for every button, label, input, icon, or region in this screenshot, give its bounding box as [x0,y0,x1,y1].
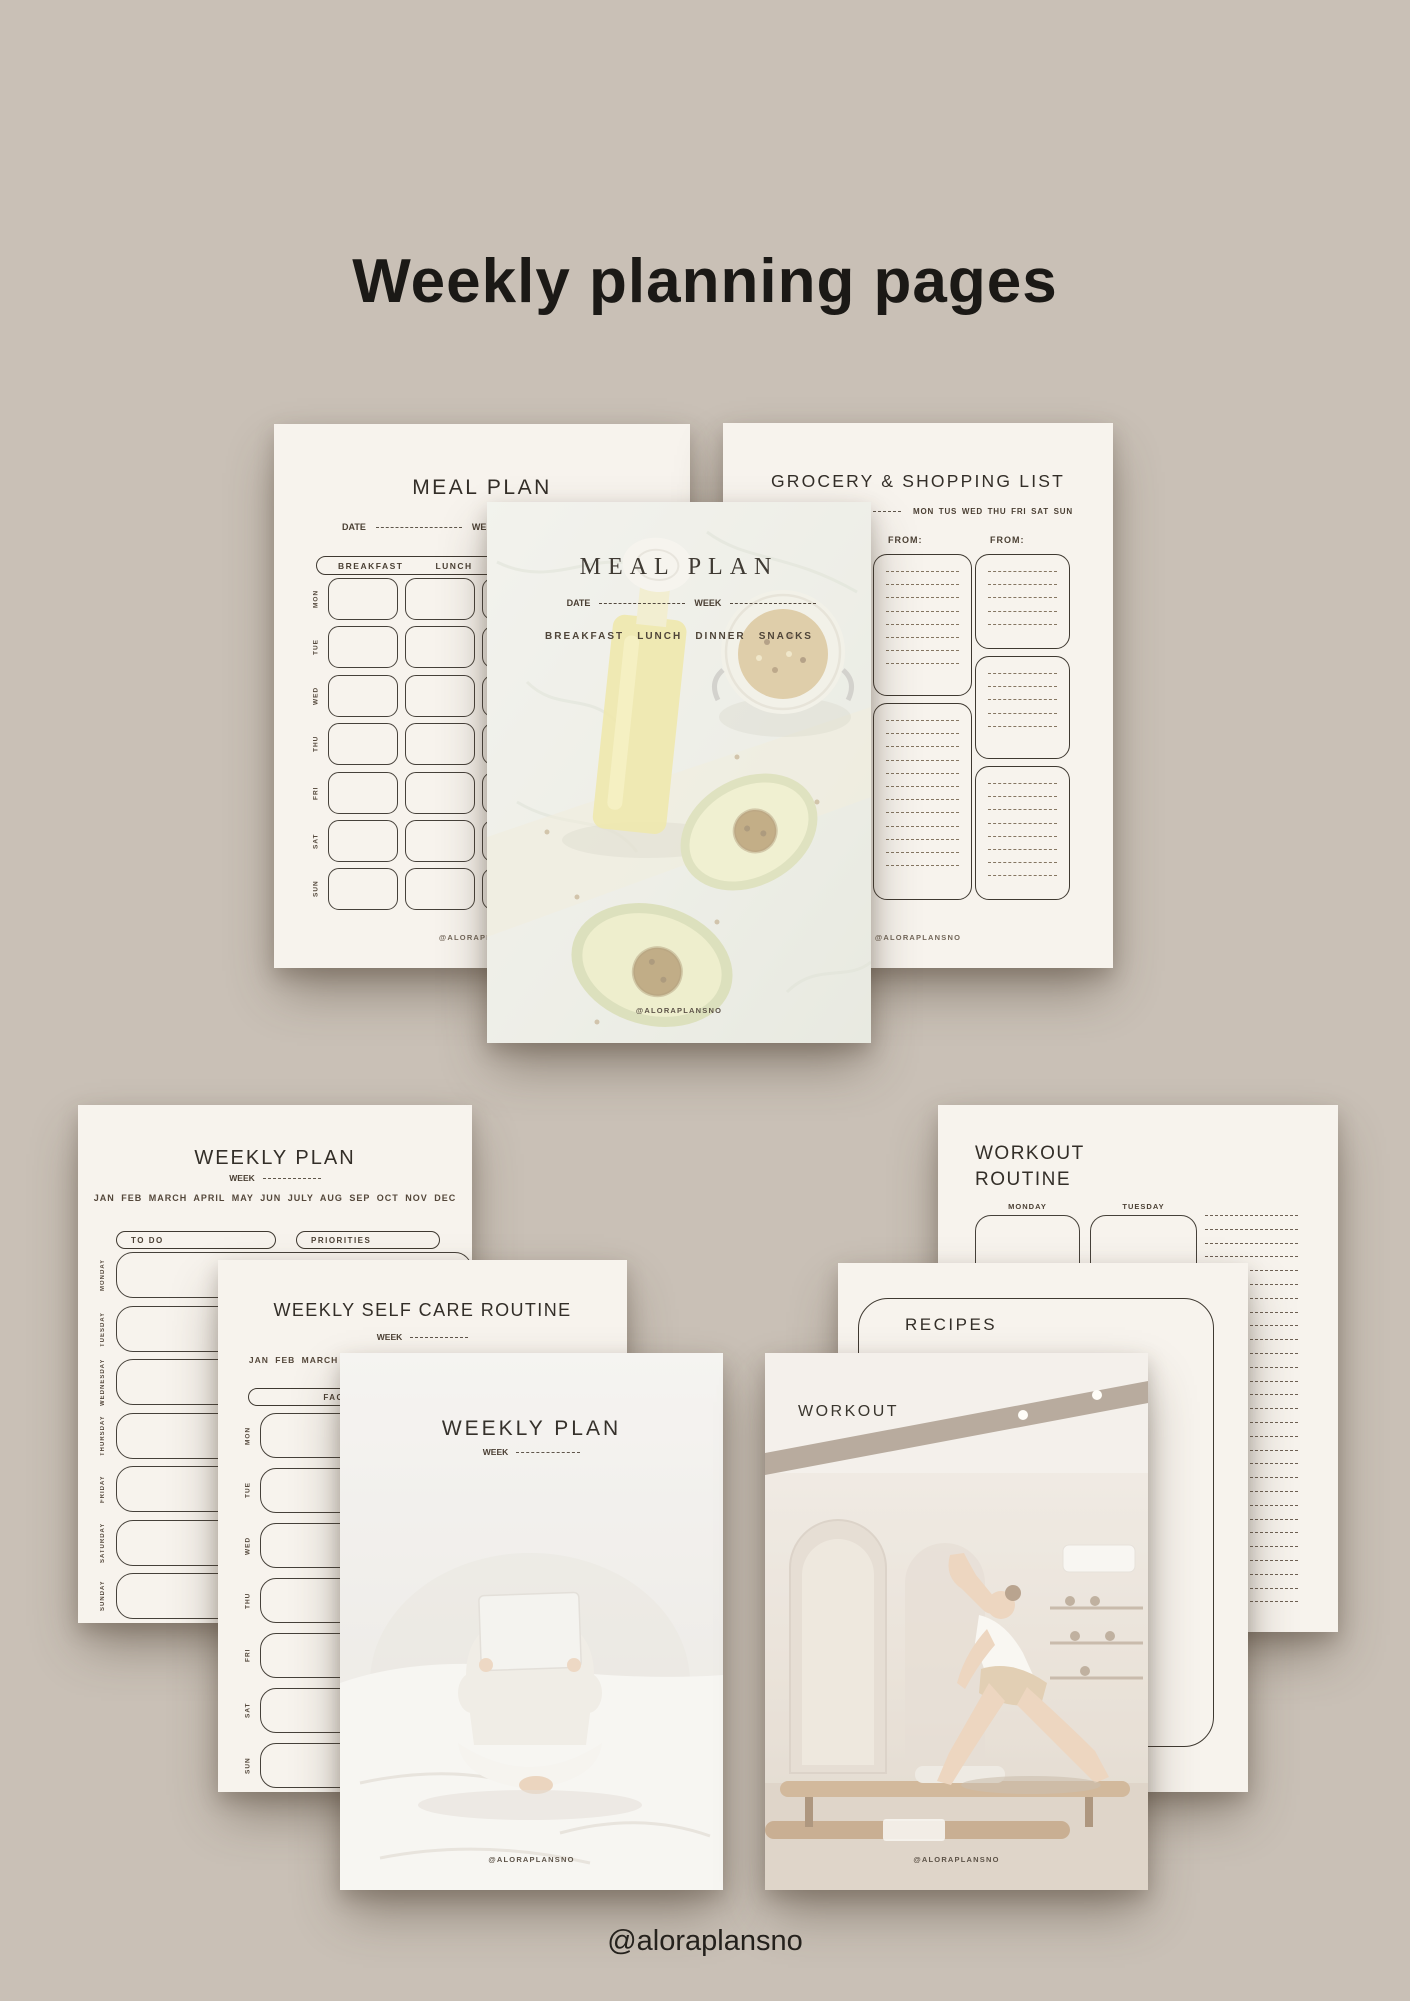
workout-cover-page: WORKOUT @ALORAPLANSNO [765,1353,1148,1890]
meal-cell [328,772,398,814]
dashed-line [886,584,959,585]
dashed-rule [730,603,816,604]
recipes-title: RECIPES [905,1315,997,1335]
week-label: WEEK [377,1332,403,1342]
week-label: WEEK [229,1173,255,1183]
dashed-line [886,637,959,638]
grocery-box [873,554,972,696]
dashed-line [988,699,1057,700]
meal-cell [405,723,475,765]
day-label: FRI [304,772,328,814]
meal-cell [328,675,398,717]
dashed-rule [263,1178,321,1179]
todo-label: TO DO [131,1236,164,1245]
dashed-line [886,720,959,721]
dashed-line [988,726,1057,727]
workout-cover-photo [765,1353,1148,1890]
dashed-line [886,812,959,813]
dashed-line [988,686,1057,687]
dashed-line [886,624,959,625]
priorities-label: PRIORITIES [311,1236,371,1245]
footer-handle: @aloraplansno [0,1925,1410,1958]
dashed-line [988,823,1057,824]
dashed-line [988,713,1057,714]
day-label: FRIDAY [90,1466,116,1512]
dashed-line [886,852,959,853]
grocery-days: MONTUSWEDTHUFRISATSUN [913,507,1073,516]
priorities-pill: PRIORITIES [296,1231,440,1249]
meal-plan-cover-page: MEAL PLAN DATE WEEK BREAKFASTLUNCHDINNER… [487,502,871,1043]
todo-pill: TO DO [116,1231,276,1249]
dashed-line [886,799,959,800]
meal-label: LUNCH [637,631,682,642]
day-label: THURSDAY [90,1413,116,1459]
weekly-form-title: WEEKLY PLAN [78,1147,472,1170]
dashed-line [988,611,1057,612]
day-label: SATURDAY [90,1520,116,1566]
grocery-day-label: TUS [939,507,957,516]
meal-label: BREAKFAST [545,631,624,642]
meal-cell [328,723,398,765]
meal-cover-title: MEAL PLAN [487,554,871,581]
date-label: DATE [342,522,366,532]
weekly-cover-title: WEEKLY PLAN [340,1417,723,1441]
meal-cell [405,820,475,862]
dashed-line [886,746,959,747]
day-label: MONDAY [90,1252,116,1298]
dashed-rule [376,527,462,528]
dashed-line [886,786,959,787]
from-label: FROM: [873,535,972,547]
week-row: WEEK [78,1173,472,1183]
dashed-line [886,865,959,866]
dashed-line [886,826,959,827]
dashed-rule [599,603,685,604]
dashed-line [988,836,1057,837]
lunch-column-label: LUNCH [435,561,472,571]
workout-routine-title-line1: WORKOUT [975,1141,1085,1167]
day-label: THU [304,723,328,765]
day-label: TUE [236,1468,260,1513]
dashed-line [988,849,1057,850]
dashed-line [886,760,959,761]
day-label: WEDNESDAY [90,1359,116,1405]
meal-cell [405,675,475,717]
workout-routine-title: WORKOUT ROUTINE [975,1141,1085,1192]
dashed-line [988,571,1057,572]
dashed-line [988,584,1057,585]
week-row: WEEK [340,1447,723,1457]
grocery-box [975,766,1070,900]
day-label: SAT [304,820,328,862]
meal-cell [328,578,398,620]
meal-cell [405,626,475,668]
dashed-line [988,862,1057,863]
dashed-line [886,611,959,612]
grocery-box [975,656,1070,759]
pill-row: TO DO PRIORITIES [116,1231,440,1249]
meal-label: DINNER [695,631,745,642]
week-label: WEEK [483,1447,509,1457]
grocery-column-left: FROM: [873,535,972,900]
breakfast-column-label: BREAKFAST [338,561,403,571]
page-title: Weekly planning pages [0,246,1410,317]
dashed-line [988,796,1057,797]
meal-cell [405,772,475,814]
meal-form-title: MEAL PLAN [274,476,690,500]
dashed-line [988,624,1057,625]
grocery-day-label: MON [913,507,934,516]
weekly-plan-cover-page: WEEKLY PLAN WEEK @ALORAPLANSNO [340,1353,723,1890]
meal-cell [405,868,475,910]
dashed-line [988,597,1057,598]
dashed-rule [516,1452,580,1453]
dashed-line [1205,1243,1298,1244]
watermark: @ALORAPLANSNO [487,1006,871,1015]
day-label: THU [236,1578,260,1623]
meal-cover-meals: BREAKFASTLUNCHDINNERSNACKS [545,631,813,642]
workout-routine-title-line2: ROUTINE [975,1167,1085,1193]
day-label: SAT [236,1688,260,1733]
grocery-title: GROCERY & SHOPPING LIST [723,471,1113,492]
meal-cell [405,578,475,620]
dashed-line [886,571,959,572]
day-label: TUESDAY [90,1306,116,1352]
monday-label: MONDAY [975,1202,1080,1211]
grocery-day-label: SUN [1054,507,1073,516]
date-label: DATE [567,598,591,608]
dashed-line [886,839,959,840]
grocery-box [873,703,972,900]
day-label: MON [236,1413,260,1458]
grocery-day-label: THU [988,507,1007,516]
grocery-box [975,554,1070,649]
watermark: @ALORAPLANSNO [765,1855,1148,1864]
day-label: SUN [236,1743,260,1788]
meal-label: SNACKS [759,631,813,642]
dashed-line [988,875,1057,876]
dashed-line [886,773,959,774]
grocery-day-label: WED [962,507,983,516]
day-label: MON [304,578,328,620]
meal-cell [328,820,398,862]
grocery-column-right: FROM: [975,535,1070,900]
poster: Weekly planning pages MEAL PLAN DATE WEE… [0,0,1410,2001]
day-label: FRI [236,1633,260,1678]
dashed-line [1205,1229,1298,1230]
dashed-line [886,650,959,651]
dashed-line [1205,1215,1298,1216]
from-label: FROM: [975,535,1070,547]
date-week-row: DATE WEEK [542,598,841,608]
dashed-line [988,673,1057,674]
watermark: @ALORAPLANSNO [340,1855,723,1864]
day-label: SUNDAY [90,1573,116,1619]
dashed-line [886,597,959,598]
grocery-day-label: SAT [1031,507,1049,516]
dashed-line [886,663,959,664]
dashed-line [988,809,1057,810]
day-label: WED [236,1523,260,1568]
week-label: WEEK [694,598,721,608]
workout-cover-title: WORKOUT [798,1403,899,1421]
self-care-title: WEEKLY SELF CARE ROUTINE [218,1300,627,1321]
meal-cell [328,868,398,910]
dashed-line [886,733,959,734]
meal-cover-photo [487,502,871,1043]
day-label: WED [304,675,328,717]
dashed-line [988,783,1057,784]
months-row: JAN FEB MARCH APRIL MAY JUN JULY AUG SEP… [78,1193,472,1203]
week-row: WEEK [218,1332,627,1342]
dashed-line [1205,1256,1298,1257]
dashed-rule [410,1337,468,1338]
grocery-day-label: FRI [1011,507,1026,516]
day-label: TUE [304,626,328,668]
tuesday-label: TUESDAY [1090,1202,1197,1211]
day-label: SUN [304,868,328,910]
meal-cell [328,626,398,668]
